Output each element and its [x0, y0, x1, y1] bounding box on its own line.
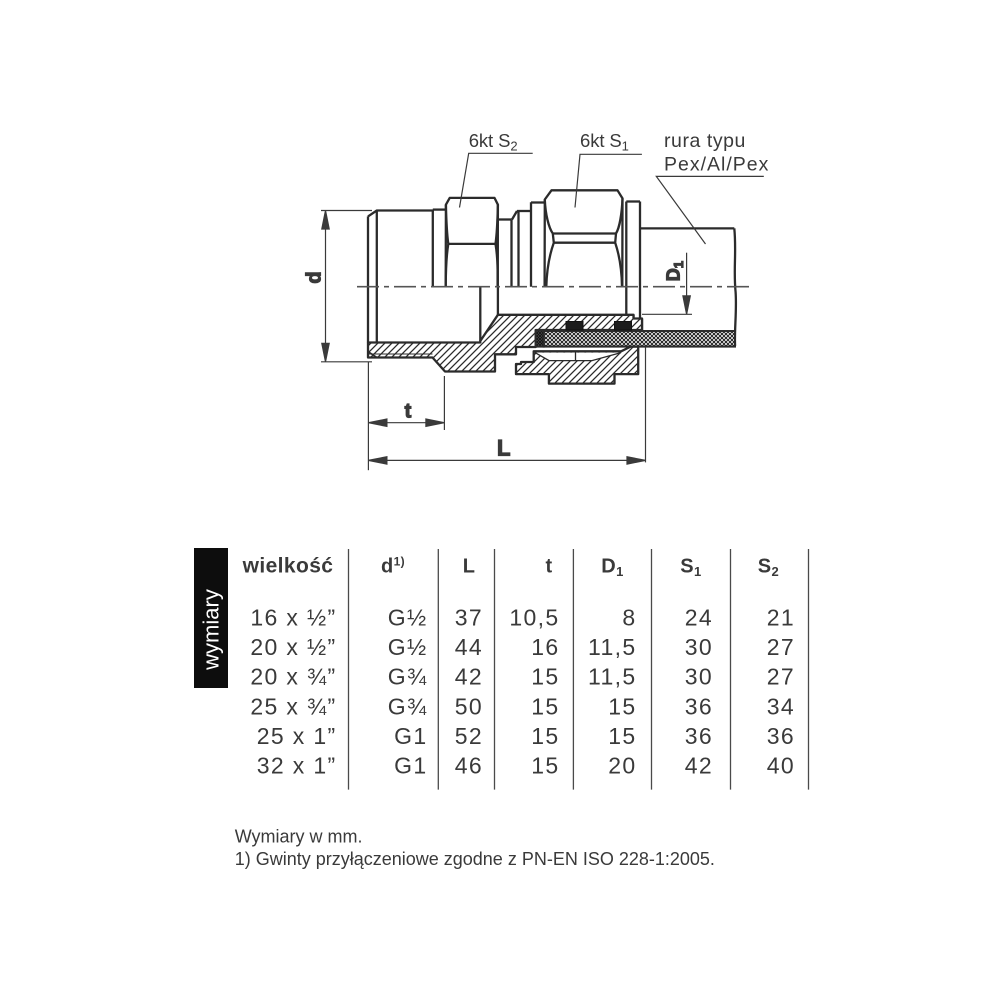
svg-text:15: 15	[531, 664, 559, 690]
svg-text:1) Gwinty przyłączeniowe zgodn: 1) Gwinty przyłączeniowe zgodne z PN-EN …	[235, 849, 715, 869]
svg-text:20 x ¾”: 20 x ¾”	[250, 664, 336, 690]
svg-text:d: d	[303, 271, 325, 283]
svg-text:wielkość: wielkość	[242, 555, 334, 578]
svg-text:G¾: G¾	[388, 664, 428, 690]
svg-text:11,5: 11,5	[588, 634, 636, 660]
svg-text:Wymiary w mm.: Wymiary w mm.	[235, 826, 363, 846]
svg-text:20: 20	[608, 753, 636, 779]
svg-text:G1: G1	[394, 753, 427, 779]
svg-text:24: 24	[685, 605, 713, 631]
svg-text:36: 36	[685, 723, 713, 749]
svg-text:15: 15	[608, 723, 636, 749]
svg-text:42: 42	[685, 753, 713, 779]
svg-text:G½: G½	[388, 634, 428, 660]
svg-text:37: 37	[455, 605, 483, 631]
svg-text:40: 40	[767, 753, 795, 779]
svg-text:L: L	[463, 556, 476, 578]
svg-text:15: 15	[531, 753, 559, 779]
svg-text:25 x 1”: 25 x 1”	[257, 723, 337, 749]
svg-text:15: 15	[531, 693, 559, 719]
svg-text:16 x ½”: 16 x ½”	[250, 605, 336, 631]
svg-text:32 x 1”: 32 x 1”	[257, 753, 337, 779]
svg-text:21: 21	[767, 605, 795, 631]
svg-text:15: 15	[608, 693, 636, 719]
svg-text:16: 16	[531, 634, 559, 660]
svg-text:10,5: 10,5	[509, 605, 559, 631]
svg-text:G¾: G¾	[388, 693, 428, 719]
svg-text:44: 44	[455, 634, 483, 660]
svg-text:30: 30	[685, 664, 713, 690]
svg-text:34: 34	[767, 693, 795, 719]
svg-text:30: 30	[685, 634, 713, 660]
svg-text:wymiary: wymiary	[199, 589, 224, 671]
svg-text:G½: G½	[388, 605, 428, 631]
svg-text:52: 52	[455, 723, 483, 749]
svg-text:15: 15	[531, 723, 559, 749]
svg-text:25 x ¾”: 25 x ¾”	[250, 693, 336, 719]
svg-text:8: 8	[622, 605, 636, 631]
svg-text:t: t	[405, 401, 412, 423]
svg-text:36: 36	[685, 693, 713, 719]
svg-text:20 x ½”: 20 x ½”	[250, 634, 336, 660]
svg-text:Pex/Al/Pex: Pex/Al/Pex	[664, 154, 769, 176]
svg-text:rura typu: rura typu	[664, 130, 746, 152]
svg-text:27: 27	[767, 634, 795, 660]
svg-text:11,5: 11,5	[588, 664, 636, 690]
svg-text:L: L	[497, 435, 510, 460]
svg-text:6kt S1: 6kt S1	[580, 130, 629, 154]
svg-text:t: t	[545, 556, 552, 578]
svg-text:46: 46	[455, 753, 483, 779]
svg-text:G1: G1	[394, 723, 427, 749]
svg-text:42: 42	[455, 664, 483, 690]
svg-text:6kt S2: 6kt S2	[469, 130, 518, 154]
svg-text:36: 36	[767, 723, 795, 749]
svg-text:50: 50	[455, 693, 483, 719]
svg-text:27: 27	[767, 664, 795, 690]
